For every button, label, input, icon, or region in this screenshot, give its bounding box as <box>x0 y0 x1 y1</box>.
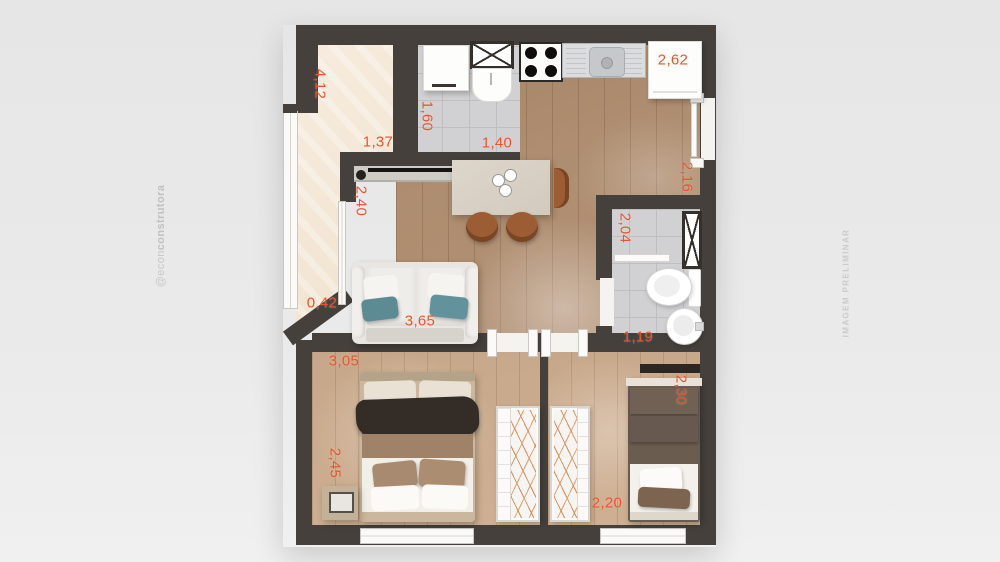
double-bed <box>360 372 475 522</box>
washing-machine-door-icon <box>432 84 456 87</box>
living-balcony-glass <box>338 201 346 305</box>
bed-foot-bench <box>360 512 475 522</box>
kitchen-counter <box>562 43 646 78</box>
sink-faucet-icon <box>695 322 704 331</box>
plate-icon <box>499 184 512 197</box>
sink-bowl-icon <box>673 315 694 336</box>
refrigerator-handle-icon <box>653 91 697 93</box>
bed2-headboard <box>626 378 702 386</box>
dim-bath-depth: 2,04 <box>617 213 634 243</box>
toilet <box>646 268 692 306</box>
wall-balcony-service <box>393 27 418 155</box>
bedroom2-door-opening <box>549 333 578 352</box>
bed-headboard <box>360 372 475 381</box>
shower-door-icon <box>682 211 702 269</box>
dim-service-depth: 1,60 <box>419 101 436 131</box>
wardrobe-hanger-rail-icon <box>554 410 578 518</box>
bedroom1-door-opening <box>495 333 528 352</box>
stove <box>519 42 563 82</box>
wardrobe-shelves-icon <box>498 408 511 520</box>
dim-bedroom2-depth: 2,30 <box>673 375 690 405</box>
dining-chair <box>506 212 538 242</box>
bathroom-sink <box>666 308 703 345</box>
floorplan-image: @econconstrutora IMAGEM PRELIMINAR <box>0 0 1000 562</box>
burner-icon <box>525 65 537 77</box>
entry-door-opening <box>701 98 715 160</box>
balcony-window <box>283 111 298 309</box>
bedroom2-door-frame-right <box>578 329 588 357</box>
dim-balcony-width: 1,37 <box>363 134 393 151</box>
wardrobe-bedroom2 <box>550 406 590 522</box>
dim-bedroom1-depth: 2,45 <box>327 448 344 478</box>
wall-bath-left-upper <box>596 209 612 280</box>
dim-bedroom1-width: 3,05 <box>329 353 359 370</box>
kitchen-sink <box>589 47 625 77</box>
dining-chair-head <box>554 168 569 208</box>
dining-chair <box>466 212 498 242</box>
bed2-pillow-brown <box>638 487 691 510</box>
refrigerator <box>648 41 702 99</box>
dim-bath-width: 1,19 <box>623 329 653 346</box>
wall-bath-top <box>596 195 700 209</box>
plate-icon <box>504 169 517 182</box>
dim-service-width: 1,40 <box>482 135 512 152</box>
bedroom1-door-frame-left <box>487 329 497 357</box>
bedroom2-window <box>600 528 686 544</box>
burner-icon <box>545 65 557 77</box>
wardrobe-hanger-rail-icon <box>511 410 536 518</box>
dim-entry-wall: 2,16 <box>679 162 696 192</box>
bed2-shelf <box>640 364 700 373</box>
plant-icon <box>356 170 366 180</box>
sofa-back <box>366 328 464 342</box>
bedroom2-door-frame-left <box>541 329 551 357</box>
window-top-stub <box>283 104 297 113</box>
sofa-pillow-teal <box>361 296 399 322</box>
bed2-foot <box>630 512 698 520</box>
bedroom1-door-frame-right <box>528 329 538 357</box>
dim-tv-wall: 2,40 <box>353 186 370 216</box>
drainboard-right-icon <box>622 48 642 74</box>
wardrobe-bedroom1 <box>496 406 540 522</box>
bedroom1-window <box>360 528 474 544</box>
burner-icon <box>545 47 557 59</box>
laundry-tub <box>472 68 512 102</box>
nightstand <box>322 486 358 520</box>
dim-sofa-wall: 3,65 <box>405 313 435 330</box>
bed-blanket-fold <box>362 434 473 460</box>
burner-icon <box>525 47 537 59</box>
dim-balcony-length: 4,12 <box>312 69 329 99</box>
dim-kitchen-run: 2,62 <box>658 52 688 69</box>
sofa <box>352 262 478 344</box>
bed-throw-blanket <box>355 396 479 438</box>
drainboard-left-icon <box>566 48 586 74</box>
bathroom-door-opening <box>600 278 614 326</box>
bed2-blanket-fold <box>630 416 698 442</box>
dim-bedroom2-width: 2,20 <box>592 495 622 512</box>
toilet-bowl-icon <box>654 275 680 297</box>
washing-machine <box>423 45 469 91</box>
bathroom-door-leaf <box>614 254 670 262</box>
laundry-tank-icon <box>470 41 514 69</box>
entry-door-leaf <box>691 103 697 157</box>
wall-wardrobe-divider <box>540 352 548 530</box>
watermark-left-light: @econ <box>155 250 167 287</box>
watermark-left: @econconstrutora <box>155 185 167 288</box>
dining-table <box>452 160 550 215</box>
wardrobe-shelves-icon <box>577 408 588 520</box>
laundry-tub-faucet-icon <box>490 73 492 85</box>
wall-left-bedroom1 <box>296 340 312 545</box>
bed-pillow-white <box>370 485 419 511</box>
photo-frame-icon <box>329 492 354 513</box>
watermark-left-bold: construtora <box>155 185 167 251</box>
bed-pillow-white <box>422 484 469 510</box>
tv-icon <box>368 168 454 172</box>
dim-balcony-end: 0,42 <box>307 295 337 312</box>
watermark-right: IMAGEM PRELIMINAR <box>842 229 851 338</box>
tv-cabinet <box>354 166 466 182</box>
